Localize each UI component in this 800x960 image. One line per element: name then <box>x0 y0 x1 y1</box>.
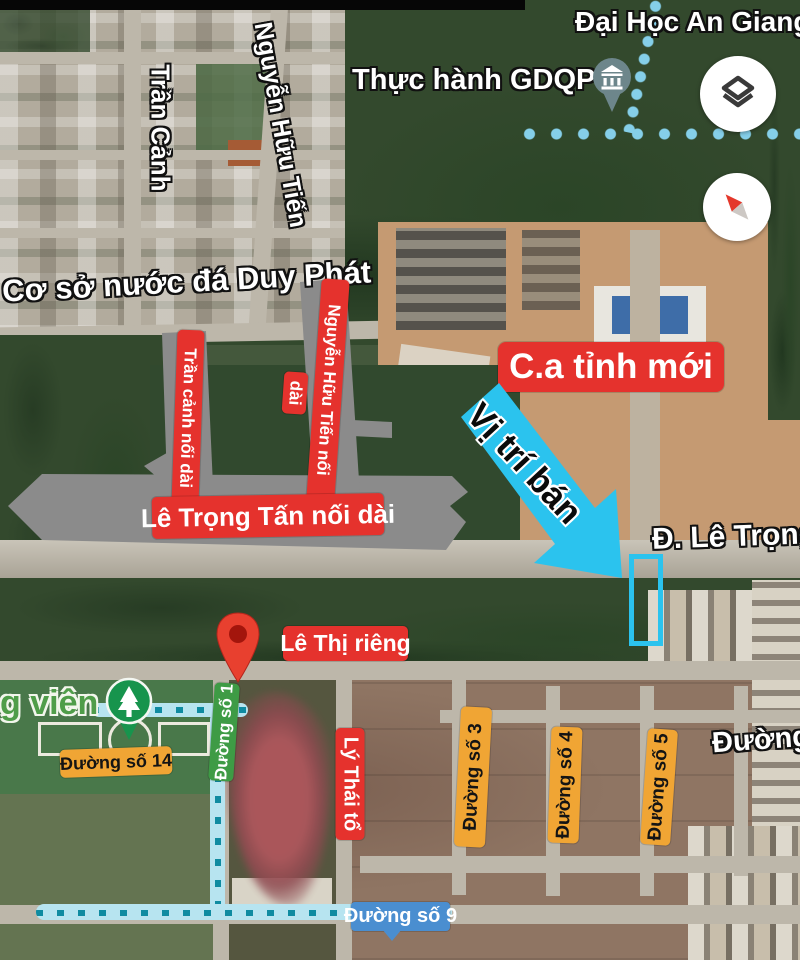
red-map-pin[interactable] <box>214 610 262 690</box>
school-pin[interactable] <box>590 56 634 114</box>
park-tree-icon <box>107 679 151 740</box>
layers-button[interactable] <box>700 56 776 132</box>
layers-icon <box>715 71 761 117</box>
sale-arrow <box>0 0 800 960</box>
school-pin-icon <box>593 58 631 112</box>
park-pin[interactable] <box>104 676 154 742</box>
map-canvas[interactable]: Đại Học An Giang Thực hành GDQP Trần Cản… <box>0 0 800 960</box>
sale-plot-outline <box>629 554 663 646</box>
compass-button[interactable] <box>703 173 771 241</box>
compass-icon <box>707 177 766 236</box>
